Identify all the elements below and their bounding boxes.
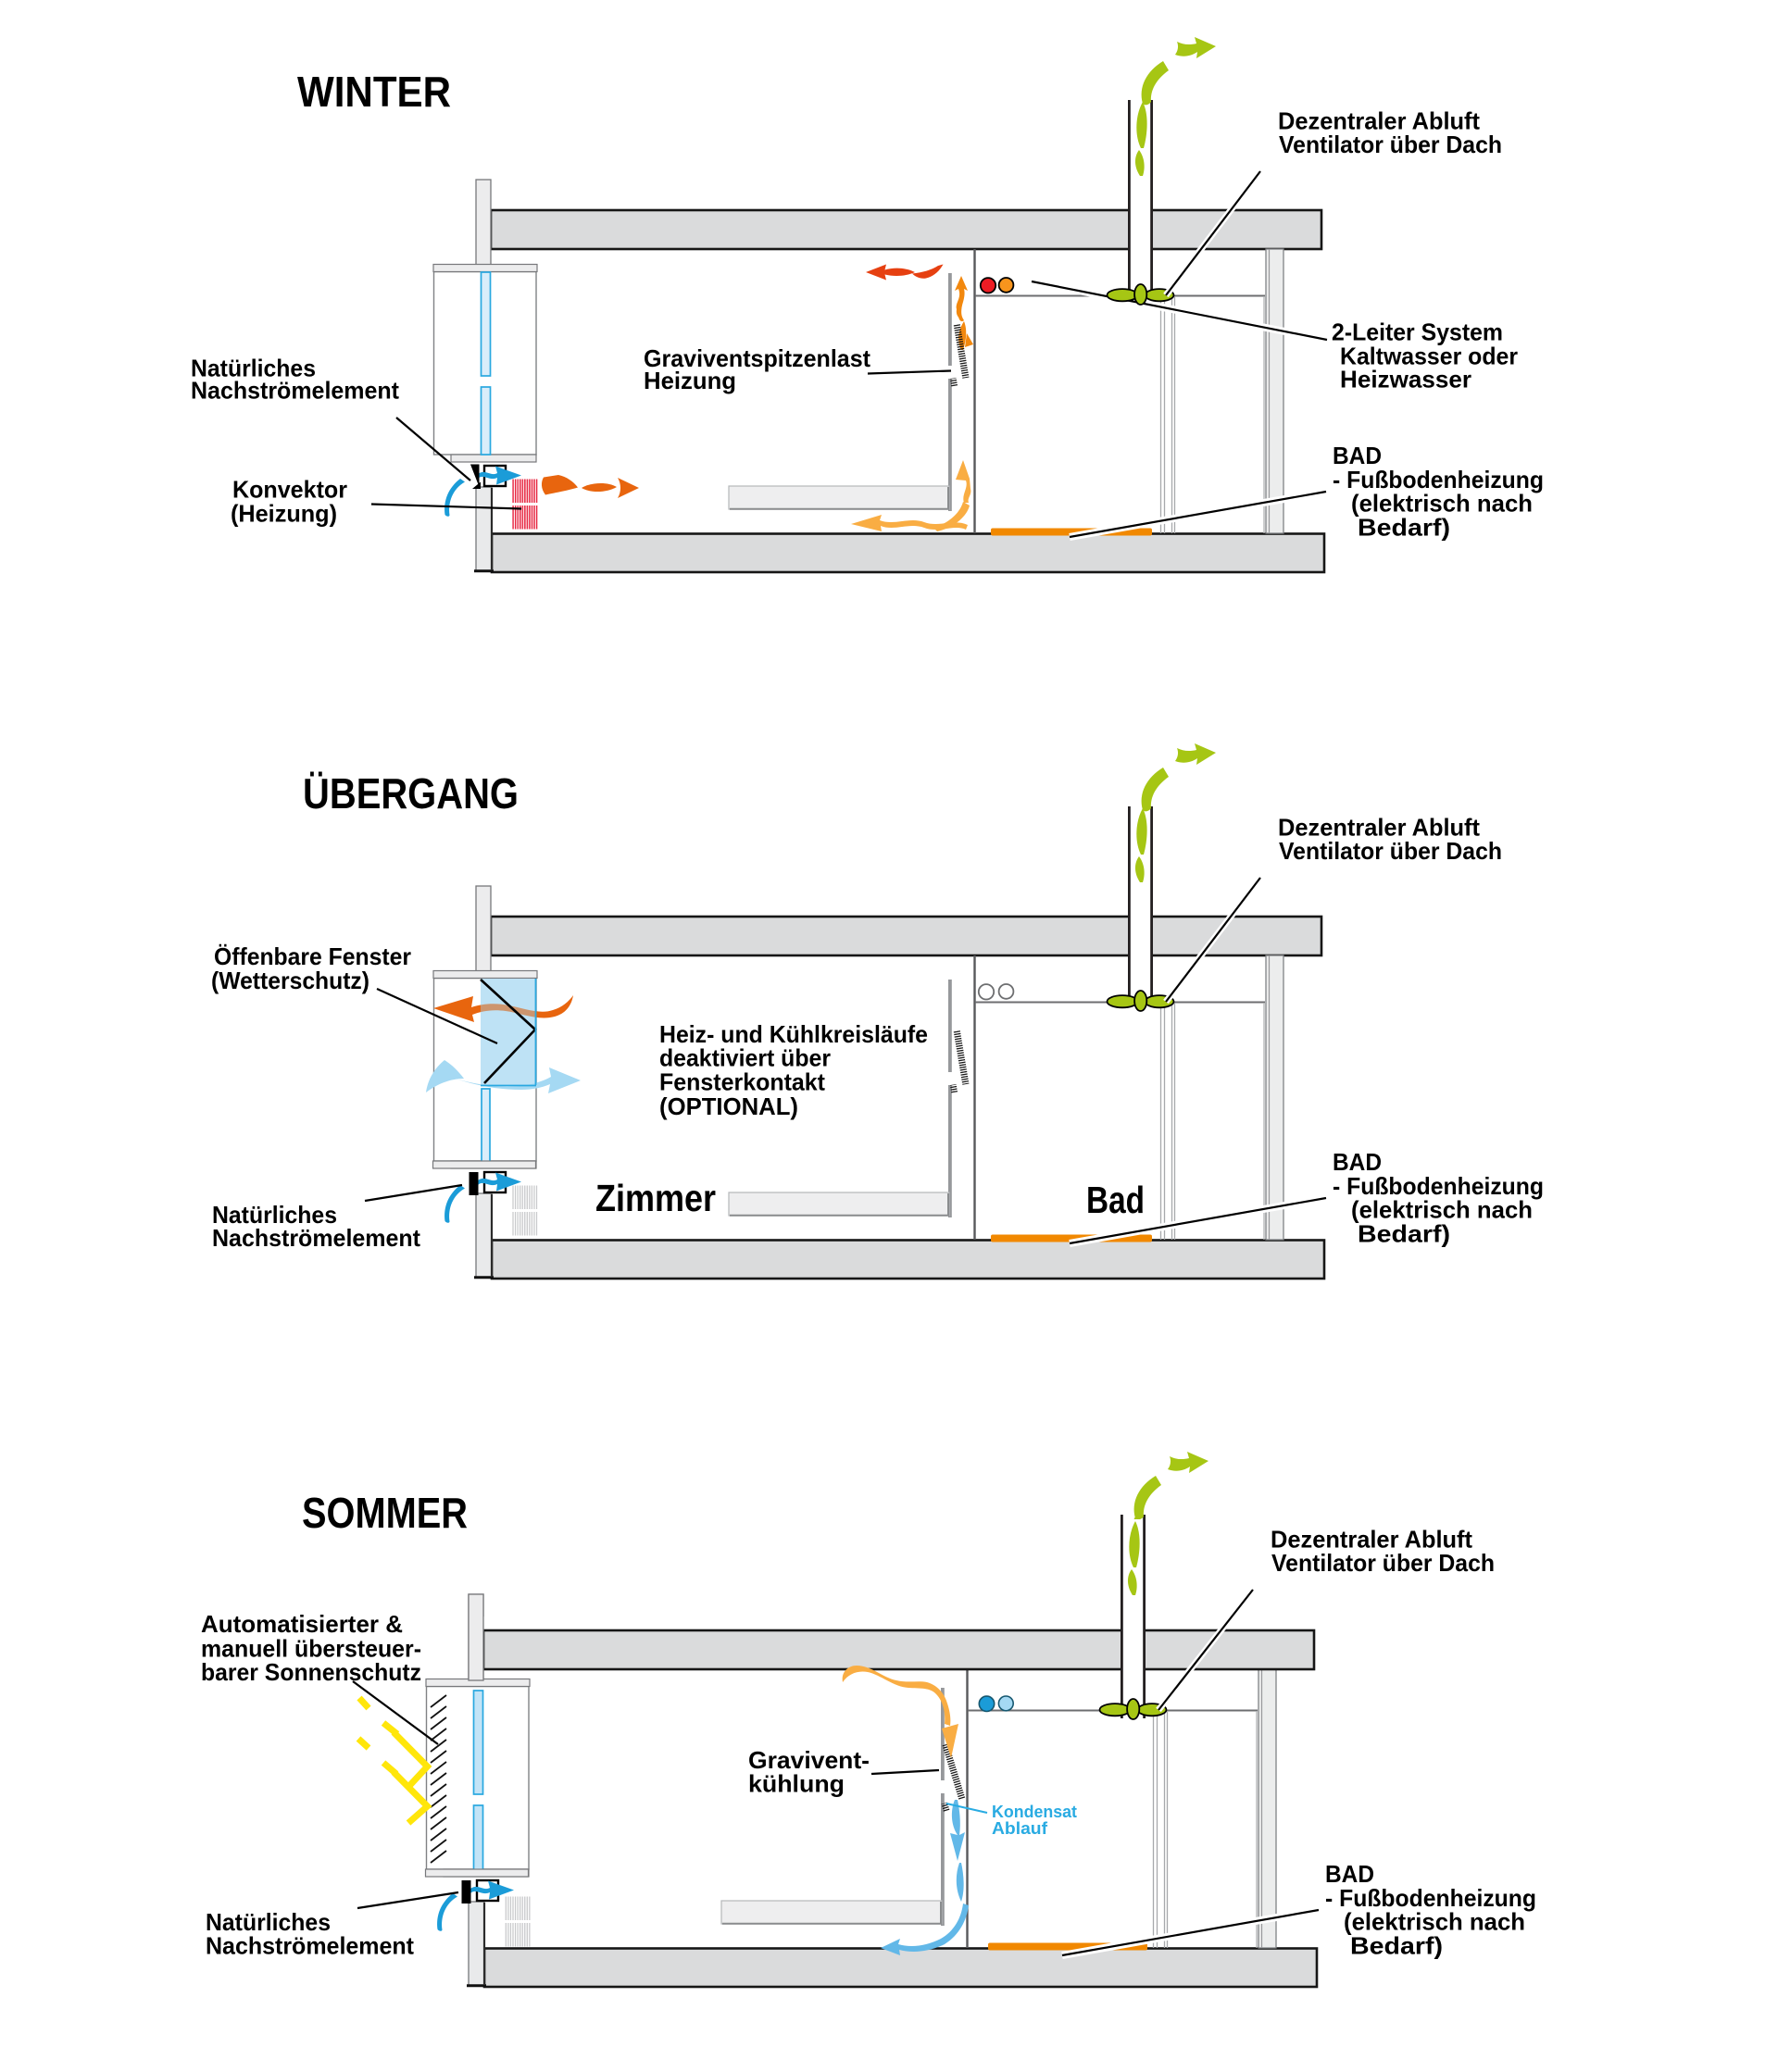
- svg-text:Nachströmelement: Nachströmelement: [206, 1932, 414, 1960]
- svg-text:kühlung: kühlung: [748, 1770, 845, 1798]
- svg-text:ÜBERGANG: ÜBERGANG: [303, 769, 519, 818]
- svg-text:WINTER: WINTER: [297, 68, 451, 116]
- svg-text:Bedarf): Bedarf): [1358, 514, 1450, 542]
- svg-text:Ventilator über Dach: Ventilator über Dach: [1279, 837, 1502, 865]
- svg-text:barer Sonnenschutz: barer Sonnenschutz: [201, 1658, 421, 1686]
- svg-text:Zimmer: Zimmer: [595, 1177, 716, 1219]
- svg-text:Bedarf): Bedarf): [1350, 1932, 1443, 1960]
- svg-text:Heizung: Heizung: [644, 367, 736, 394]
- svg-text:Kondensat: Kondensat: [992, 1803, 1077, 1821]
- svg-text:Nachströmelement: Nachströmelement: [191, 376, 399, 404]
- svg-text:(Heizung): (Heizung): [231, 500, 337, 528]
- svg-text:Nachströmelement: Nachströmelement: [212, 1224, 420, 1252]
- svg-text:(OPTIONAL): (OPTIONAL): [659, 1092, 798, 1120]
- svg-text:Ventilator über Dach: Ventilator über Dach: [1271, 1549, 1495, 1577]
- svg-text:Ventilator über Dach: Ventilator über Dach: [1279, 131, 1502, 158]
- svg-text:Bad: Bad: [1086, 1179, 1145, 1221]
- svg-text:Fensterkontakt: Fensterkontakt: [659, 1068, 825, 1096]
- svg-text:(Wetterschutz): (Wetterschutz): [211, 967, 369, 994]
- svg-text:Automatisierter &: Automatisierter &: [201, 1610, 403, 1638]
- svg-text:Bedarf): Bedarf): [1358, 1220, 1450, 1248]
- svg-text:Ablauf: Ablauf: [992, 1819, 1048, 1838]
- svg-text:Heizwasser: Heizwasser: [1340, 366, 1471, 393]
- svg-text:SOMMER: SOMMER: [302, 1489, 468, 1537]
